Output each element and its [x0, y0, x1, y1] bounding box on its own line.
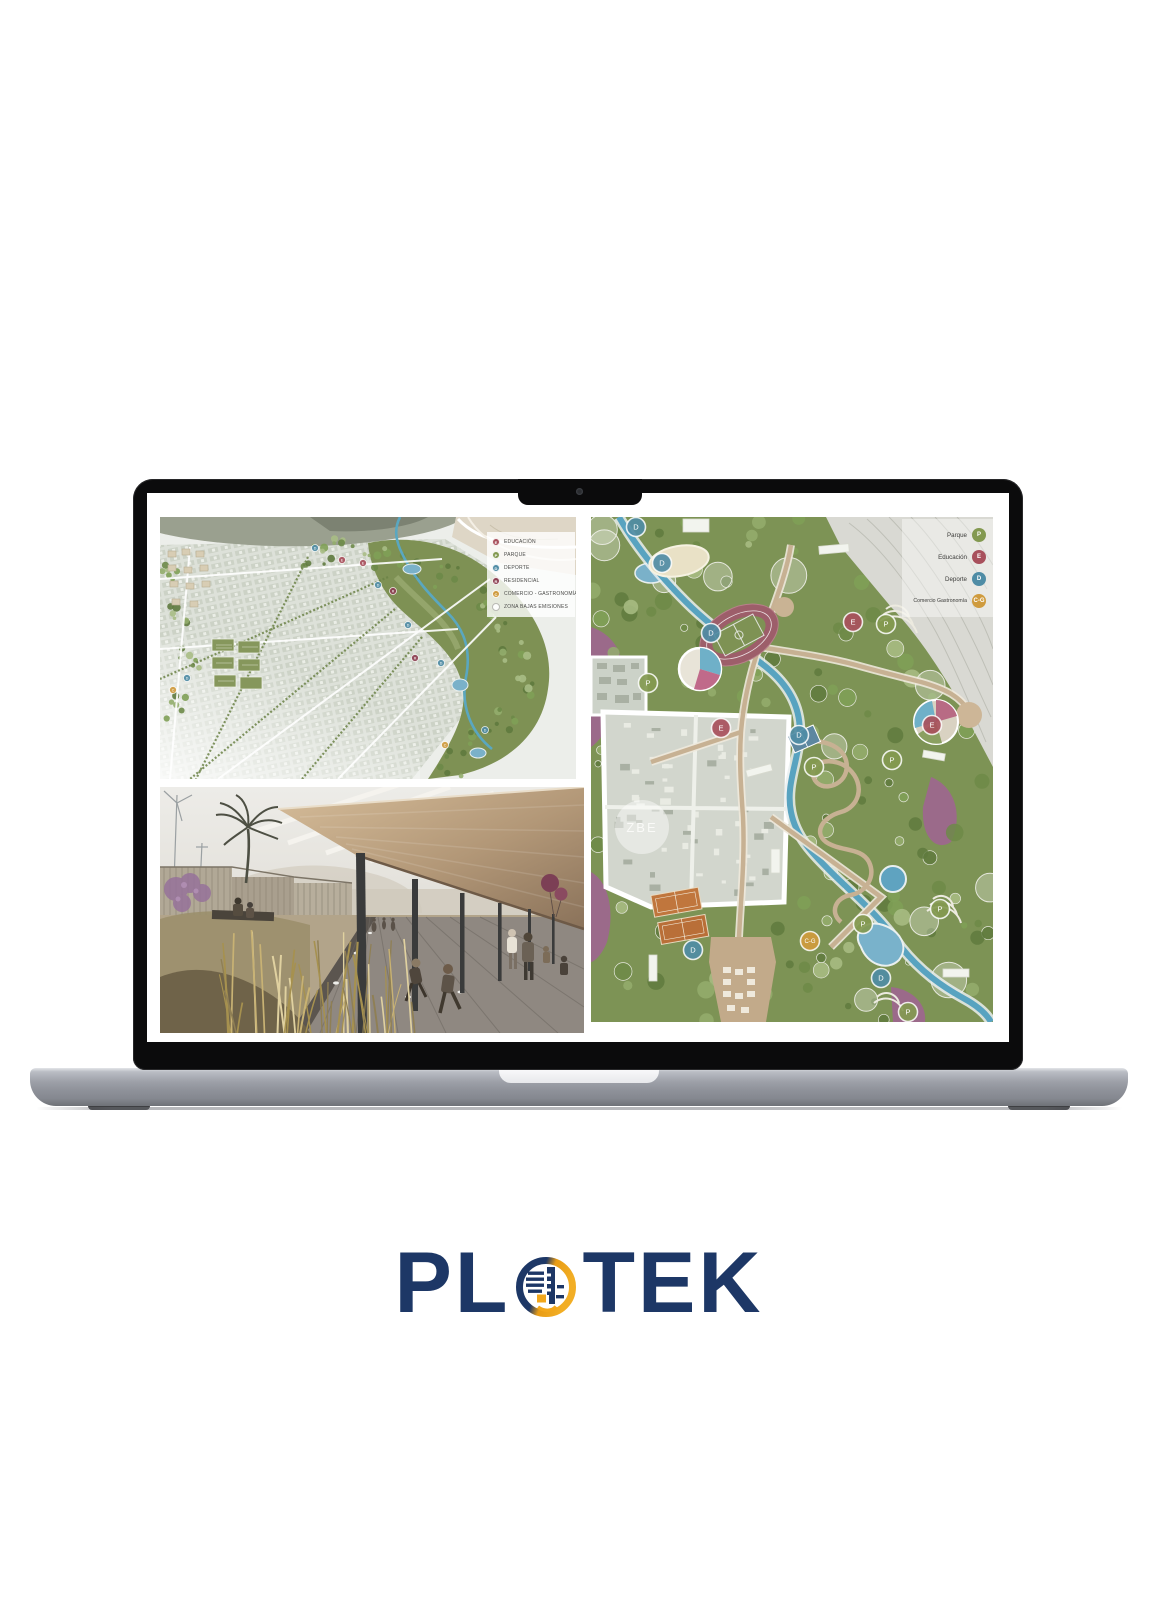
legend-badge-parque: P [492, 551, 500, 559]
legend-label: Deporte [945, 576, 967, 583]
park-legend: ParquePEducaciónEDeporteDComercio Gastro… [902, 519, 993, 617]
legend-item: PPARQUE [492, 551, 570, 559]
map-badge-letter: C [444, 743, 447, 747]
legend-badge-deporte: D [492, 564, 500, 572]
legend-item: EEDUCACIÓN [492, 538, 570, 546]
legend-badge-zbe [492, 603, 500, 611]
screen-content: DEEDRDRDDCDC EEDUCACIÓNPPARQUEDDEPORTERR… [147, 493, 1009, 1042]
masterplan-legend: EEDUCACIÓNPPARQUEDDEPORTERRESIDENCIALCCO… [487, 532, 575, 617]
logo-text-tek: TEK [582, 1240, 763, 1326]
legend-label: ZONA BAJAS EMISIONES [504, 604, 568, 610]
legend-badge-parque: P [972, 528, 986, 542]
map-badge-letter: D [659, 559, 665, 568]
map-badge-letter: D [690, 946, 696, 955]
map-badge-letter: D [186, 676, 189, 680]
zbe-zone-label: ZBE [615, 800, 669, 854]
legend-item: CCOMERCIO - GASTRONOMÍA [492, 590, 570, 598]
map-badge-letter: P [905, 1008, 910, 1017]
legend-badge-educacion: E [492, 538, 500, 546]
legend-badge-residencial: R [492, 577, 500, 585]
map-badge-letter: D [484, 728, 487, 732]
map-badge-letter: P [860, 920, 865, 929]
laptop-base [30, 1068, 1128, 1106]
walkway-render [160, 787, 584, 1033]
map-badge-letter: R [392, 589, 395, 593]
legend-label: Parque [947, 532, 967, 539]
laptop-shadow [36, 1107, 1122, 1110]
map-badge-letter: P [889, 756, 894, 765]
map-badge-letter: R [414, 656, 417, 660]
legend-item: ZONA BAJAS EMISIONES [492, 603, 570, 611]
plotek-logo: PL TEK [0, 1228, 1158, 1338]
legend-label: PARQUE [504, 552, 526, 558]
map-badge-letter: E [850, 618, 855, 627]
map-badge-letter: P [937, 905, 942, 914]
logo-o-icon [514, 1255, 578, 1319]
legend-label: DEPORTE [504, 565, 529, 571]
legend-item: RRESIDENCIAL [492, 577, 570, 585]
legend-label: Educación [938, 554, 967, 561]
map-badge-letter: D [440, 661, 443, 665]
lid-groove [499, 1068, 659, 1083]
legend-badge-educacion: E [972, 550, 986, 564]
legend-item: Comercio GastronomíaC-G [913, 594, 986, 608]
legend-badge-comercio: C-G [972, 594, 986, 608]
map-badge-letter: D [633, 523, 639, 532]
map-badge-letter: P [645, 679, 650, 688]
map-badge-letter: D [314, 546, 317, 550]
legend-item: DDEPORTE [492, 564, 570, 572]
legend-label: COMERCIO - GASTRONOMÍA [504, 591, 576, 597]
webcam-icon [576, 488, 583, 495]
map-badge-letter: D [377, 583, 380, 587]
laptop-screen: DEEDRDRDDCDC EEDUCACIÓNPPARQUEDDEPORTERR… [133, 479, 1023, 1070]
map-badge-letter: E [929, 721, 934, 730]
map-badge-letter: C-G [805, 939, 816, 945]
masterplan-map: DEEDRDRDDCDC EEDUCACIÓNPPARQUEDDEPORTERR… [160, 517, 576, 779]
walkway-render-graphic [160, 787, 584, 1033]
legend-item: DeporteD [945, 572, 986, 586]
map-badge-letter: P [883, 620, 888, 629]
map-badge-letter: D [796, 731, 802, 740]
legend-item: EducaciónE [938, 550, 986, 564]
legend-label: RESIDENCIAL [504, 578, 540, 584]
map-badge-letter: E [718, 724, 723, 733]
legend-label: EDUCACIÓN [504, 539, 536, 545]
map-badge-letter: P [811, 763, 816, 772]
legend-label: Comercio Gastronomía [913, 598, 967, 604]
map-badge-letter: D [708, 629, 714, 638]
park-map: DDPDEPEDEPPPPC-GDDP ZBE ParquePEducación… [591, 517, 993, 1022]
map-badge-letter: C [172, 688, 175, 692]
logo-text-pl: PL [395, 1240, 511, 1326]
camera-notch [518, 479, 642, 505]
legend-badge-deporte: D [972, 572, 986, 586]
laptop-mockup: DEEDRDRDDCDC EEDUCACIÓNPPARQUEDDEPORTERR… [0, 0, 1158, 1120]
legend-item: ParqueP [947, 528, 986, 542]
map-badge-letter: D [407, 623, 410, 627]
map-badge-letter: D [878, 974, 884, 983]
legend-badge-comercio: C [492, 590, 500, 598]
